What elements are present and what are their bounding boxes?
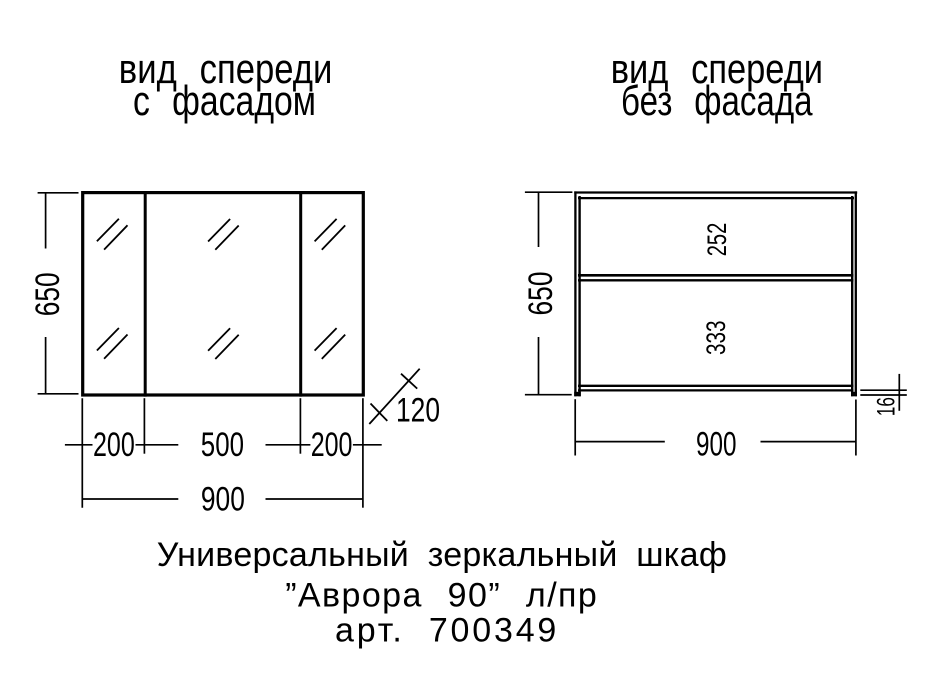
svg-text:Универсальный зеркальный шкаф: Универсальный зеркальный шкаф	[157, 536, 727, 574]
svg-text:900: 900	[201, 481, 245, 519]
svg-text:650: 650	[522, 272, 560, 316]
svg-text:333: 333	[701, 320, 731, 355]
svg-text:650: 650	[29, 272, 67, 316]
svg-text:252: 252	[702, 223, 732, 257]
svg-text:16: 16	[873, 397, 901, 416]
svg-text:арт. 700349: арт. 700349	[335, 611, 556, 649]
svg-text:500: 500	[201, 426, 244, 464]
svg-text:900: 900	[696, 426, 737, 464]
svg-text:120: 120	[396, 391, 440, 429]
svg-text:200: 200	[311, 426, 353, 464]
svg-text:”Аврора 90” л/пр: ”Аврора 90” л/пр	[285, 576, 597, 614]
svg-text:с фасадом: с фасадом	[133, 77, 316, 124]
svg-text:без фасада: без фасада	[621, 77, 813, 124]
svg-text:200: 200	[93, 426, 135, 464]
